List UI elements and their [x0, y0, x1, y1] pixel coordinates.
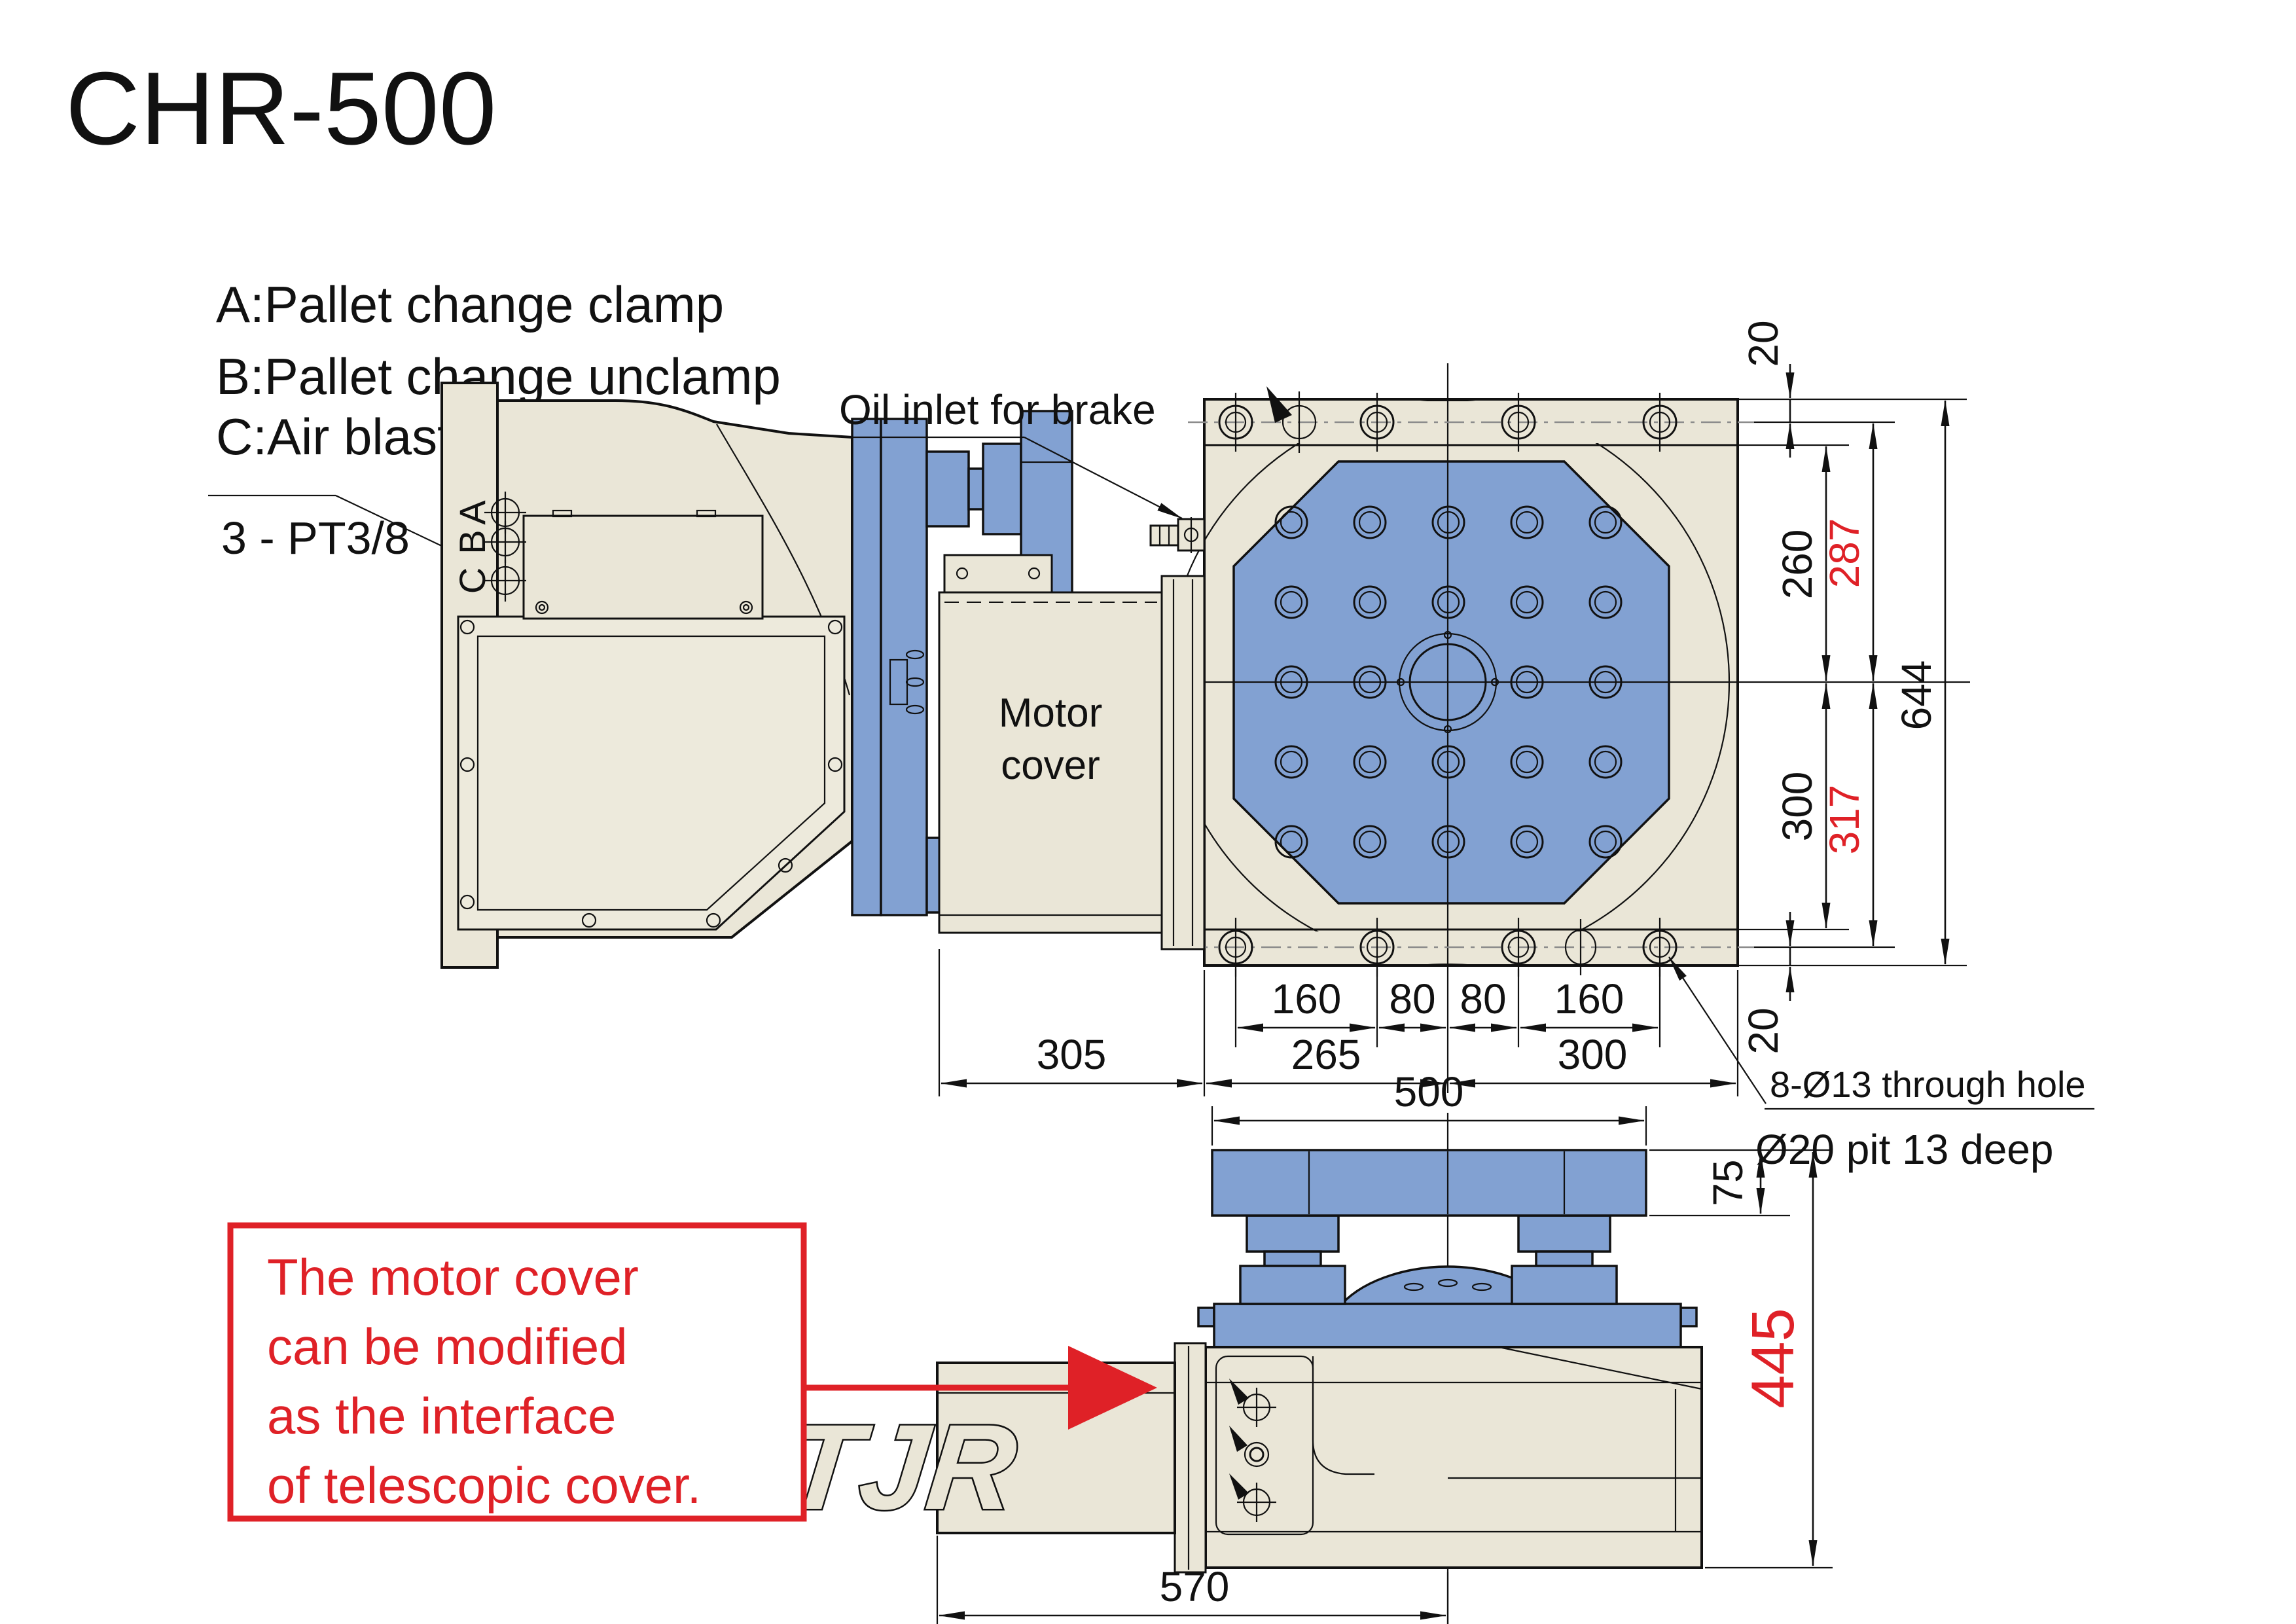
svg-text:300: 300 — [1774, 772, 1821, 842]
svg-text:287: 287 — [1821, 518, 1868, 588]
port-c-label: C — [452, 568, 493, 594]
front-view: TJR — [780, 1113, 1702, 1624]
svg-text:570: 570 — [1160, 1563, 1230, 1610]
svg-text:75: 75 — [1704, 1159, 1751, 1206]
dim-305: 305 — [941, 1031, 1202, 1083]
pallet-front — [1212, 1150, 1646, 1216]
dim-445-red: 445 — [1705, 1152, 1833, 1568]
dim-80-right: 80 — [1450, 975, 1516, 1028]
clamp-post-upper — [927, 444, 1021, 534]
legend-line-a: A:Pallet change clamp — [216, 276, 724, 333]
motor-cover-label-1: Motor — [999, 691, 1102, 736]
port-b-label: B — [452, 530, 493, 554]
flange-tab — [1681, 1308, 1696, 1326]
page-title: CHR-500 — [65, 51, 497, 166]
svg-text:305: 305 — [1037, 1031, 1107, 1078]
table-hub — [881, 419, 927, 915]
port-a-label: A — [452, 500, 493, 525]
port-spec-label: 3 - PT3/8 — [221, 513, 410, 564]
motor-cover-flange-plan — [1162, 576, 1204, 949]
svg-text:20: 20 — [1740, 1007, 1787, 1054]
dim-500: 500 — [1212, 1068, 1646, 1146]
dim-644: 644 — [1893, 401, 1945, 964]
note-line-1: The motor cover — [267, 1248, 639, 1306]
cover-flange-front — [1175, 1343, 1206, 1572]
svg-text:160: 160 — [1272, 975, 1342, 1022]
dim-317-red: 317 — [1821, 683, 1873, 946]
svg-text:265: 265 — [1291, 1031, 1361, 1078]
side-motor-cover-box — [524, 516, 762, 619]
hole-spec-callout: 8-Ø13 through hole Ø20 pit 13 deep — [1669, 957, 2094, 1173]
svg-text:160: 160 — [1554, 975, 1624, 1022]
svg-text:300: 300 — [1558, 1031, 1628, 1078]
svg-text:445: 445 — [1740, 1308, 1806, 1409]
flange-tab — [1198, 1308, 1214, 1326]
technical-drawing: CHR-500 A:Pallet change clamp B:Pallet c… — [0, 0, 2296, 1624]
dim-160-right: 160 — [1520, 975, 1658, 1028]
note-line-4: of telescopic cover. — [267, 1456, 701, 1514]
dim-260: 260 — [1774, 446, 1826, 681]
dim-80-left: 80 — [1379, 975, 1446, 1028]
clamp-post-left-front — [1240, 1216, 1345, 1304]
svg-text:20: 20 — [1740, 320, 1787, 367]
svg-text:80: 80 — [1460, 975, 1506, 1022]
svg-text:260: 260 — [1774, 530, 1821, 600]
drawing-page: CHR-500 A:Pallet change clamp B:Pallet c… — [0, 0, 2296, 1624]
dim-287-red: 287 — [1821, 424, 1873, 681]
oil-inlet-fitting — [1151, 517, 1204, 553]
svg-text:317: 317 — [1821, 785, 1868, 855]
svg-text:80: 80 — [1389, 975, 1435, 1022]
svg-text:644: 644 — [1893, 660, 1940, 731]
dim-160-left: 160 — [1238, 975, 1375, 1028]
dim-top-margin: 20 — [1740, 320, 1790, 458]
dim-300-vert: 300 — [1774, 683, 1826, 928]
brand-logo: TJR — [780, 1399, 1022, 1534]
motor-cover-label-2: cover — [1001, 743, 1100, 788]
plan-bottom-dimensions: 160 80 80 160 305 265 300 — [939, 949, 1738, 1096]
dim-bottom-margin: 20 — [1740, 912, 1790, 1055]
table-flange-front — [1214, 1304, 1681, 1347]
junction-box — [944, 555, 1052, 592]
note-line-3: as the interface — [267, 1387, 616, 1445]
svg-text:500: 500 — [1394, 1068, 1464, 1115]
note-line-2: can be modified — [267, 1318, 628, 1375]
oil-inlet-label: Oil inlet for brake — [839, 386, 1156, 433]
dim-300-horiz: 300 — [1450, 1031, 1736, 1083]
legend-line-c: C:Air blast — [216, 408, 452, 465]
plan-right-dimensions: 20 260 287 644 300 317 20 — [1738, 320, 1967, 1054]
clamp-post-right-front — [1512, 1216, 1617, 1304]
hole-spec-line1: 8-Ø13 through hole — [1770, 1064, 2086, 1105]
table-face-plate — [852, 419, 881, 915]
